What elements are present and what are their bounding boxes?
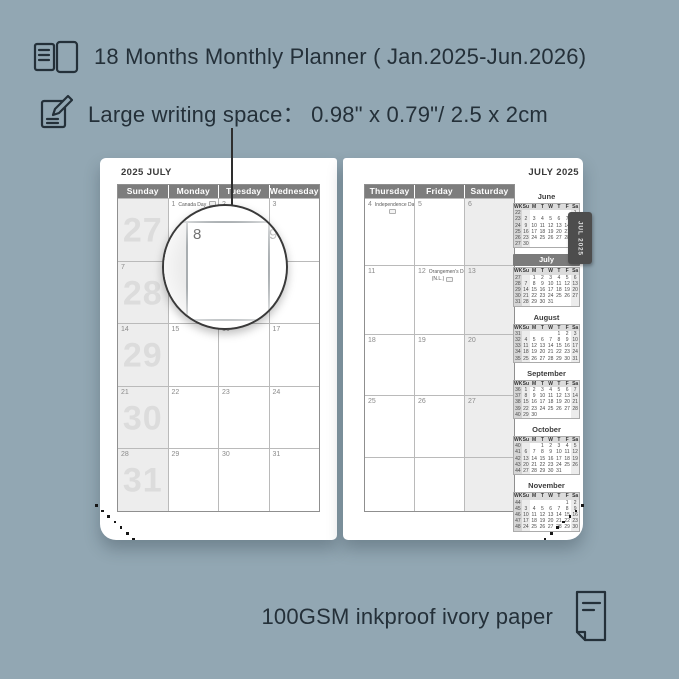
cell-date-line: 25 xyxy=(365,396,414,406)
mini-header-cell: WK xyxy=(514,268,522,275)
cell-date-line: 21 xyxy=(118,387,168,397)
mini-header-cell: Su xyxy=(522,493,530,500)
magnified-grid-line xyxy=(186,221,188,328)
mini-week-number: 27 xyxy=(514,275,522,281)
day-header-saturday: Saturday xyxy=(465,185,514,198)
cell-date-line: 24 xyxy=(270,387,320,397)
mini-calendar-october: OctoberWKSuMTWTFSa4012345416789101112421… xyxy=(513,425,580,475)
cell-date-line xyxy=(465,458,514,460)
right-month-grid: ThursdayFridaySaturday4Independence Day5… xyxy=(364,184,515,512)
mini-header-row: WKSuMTWTFSa xyxy=(514,437,580,444)
mini-date-cell: 25 xyxy=(522,356,530,363)
mini-date-cell: 27 xyxy=(538,356,546,363)
mini-date-cell: 30 xyxy=(538,299,546,306)
date-number: 14 xyxy=(121,326,129,334)
mini-header-cell: W xyxy=(547,204,555,211)
mini-week-number: 42 xyxy=(514,456,522,462)
stitch-dot xyxy=(562,521,565,524)
mini-header-cell: Su xyxy=(522,204,530,211)
holiday-label: Orangemen's Day xyxy=(429,268,464,276)
mini-date-cell: 26 xyxy=(538,524,546,531)
mini-date-cell xyxy=(563,299,571,306)
mini-date-cell: 27 xyxy=(555,235,563,241)
mini-date-cell xyxy=(571,299,579,306)
magnifier-circle: 8 9 xyxy=(162,204,288,330)
mini-date-cell xyxy=(571,468,579,475)
holiday-flag-icon xyxy=(446,277,453,282)
day-cell: 18 xyxy=(365,335,414,396)
mini-week-number: 44 xyxy=(514,500,522,506)
cell-date-line: 12Orangemen's Day xyxy=(415,266,464,276)
mini-week-number: 48 xyxy=(514,524,522,531)
day-cell: 13 xyxy=(465,266,514,334)
mini-header-cell: T xyxy=(555,437,563,444)
mini-header-row: WKSuMTWTFSa xyxy=(514,493,580,500)
mini-date-cell: 26 xyxy=(530,356,538,363)
stitch-dot xyxy=(120,526,123,529)
stitch-dot xyxy=(101,510,104,513)
holiday-flag-line xyxy=(365,209,414,214)
mini-header-cell: M xyxy=(530,493,538,500)
mini-date-cell: 13 xyxy=(522,456,530,462)
mini-header-cell: T xyxy=(555,493,563,500)
mini-header-cell: M xyxy=(530,437,538,444)
mini-header-cell: W xyxy=(547,380,555,387)
mini-date-cell: 10 xyxy=(555,449,563,455)
mini-date-cell xyxy=(555,412,563,419)
mini-header-row: WKSuMTWTFSa xyxy=(514,324,580,331)
mini-date-cell: 19 xyxy=(555,399,563,405)
mini-calendar-title: September xyxy=(513,369,580,379)
cell-date-line: 19 xyxy=(415,335,464,345)
date-number: 23 xyxy=(222,389,230,397)
cell-date-line: 30 xyxy=(219,449,269,459)
mini-date-cell: 31 xyxy=(547,299,555,306)
day-cell: 12Orangemen's Day(N.L.) xyxy=(415,266,464,334)
date-number: 28 xyxy=(121,451,129,459)
stitch-dot xyxy=(575,510,578,513)
mini-date-cell xyxy=(547,412,555,419)
day-cell: 30 xyxy=(219,449,269,511)
stitch-dot xyxy=(550,532,553,535)
magnified-adjacent-date: 9 xyxy=(269,226,277,243)
open-book-icon xyxy=(33,38,79,76)
week-number: 29 xyxy=(123,337,163,376)
mini-date-cell: 15 xyxy=(522,399,530,405)
date-number: 6 xyxy=(468,201,472,209)
holiday-flag-icon xyxy=(389,209,396,214)
day-cell: 5 xyxy=(415,199,464,265)
mini-week-number: 27 xyxy=(514,241,522,248)
mini-header-cell: Su xyxy=(522,268,530,275)
mini-week-number: 38 xyxy=(514,399,522,405)
planner-right-page: JULY 2025 ThursdayFridaySaturday4Indepen… xyxy=(343,158,583,540)
mini-header-cell: WK xyxy=(514,493,522,500)
mini-date-cell: 28 xyxy=(530,468,538,475)
mini-date-cell: 30 xyxy=(522,241,530,248)
mini-header-cell: T xyxy=(538,380,546,387)
cell-date-line: 26 xyxy=(415,396,464,406)
mini-header-cell: T xyxy=(538,204,546,211)
date-number: 21 xyxy=(121,389,129,397)
date-number: 5 xyxy=(418,201,422,209)
cell-date-line: 13 xyxy=(465,266,514,276)
feature-months: 18 Months Monthly Planner ( Jan.2025-Jun… xyxy=(33,38,586,76)
mini-header-cell: W xyxy=(547,437,555,444)
cell-date-line: 4Independence Day xyxy=(365,199,414,209)
day-cell: 27 xyxy=(465,396,514,457)
cell-date-line: 14 xyxy=(118,324,168,334)
day-header-tuesday: Tuesday xyxy=(219,185,269,198)
feature-writing-text: Large writing space： 0.98" x 0.79"/ 2.5 … xyxy=(88,97,548,129)
day-cell: 26 xyxy=(415,396,464,457)
day-header-friday: Friday xyxy=(415,185,464,198)
mini-header-cell: M xyxy=(530,324,538,331)
product-image: 18 Months Monthly Planner ( Jan.2025-Jun… xyxy=(0,0,679,679)
mini-header-cell: WK xyxy=(514,380,522,387)
mini-date-cell: 30 xyxy=(571,524,579,531)
mini-header-cell: Su xyxy=(522,380,530,387)
mini-week-row: 3128293031 xyxy=(514,299,580,306)
mini-date-cell: 25 xyxy=(555,293,563,299)
right-page-title: JULY 2025 xyxy=(528,167,579,178)
mini-date-cell xyxy=(538,412,546,419)
cell-date-line: 11 xyxy=(365,266,414,276)
date-number: 3 xyxy=(273,201,277,209)
mini-date-cell: 22 xyxy=(555,349,563,355)
mini-header-cell: T xyxy=(555,204,563,211)
mini-week-number: 24 xyxy=(514,223,522,229)
mini-date-cell: 27 xyxy=(547,524,555,531)
day-cell: 22 xyxy=(169,387,219,449)
mini-calendar-august: AugustWKSuMTWTFSa31123324567891033111213… xyxy=(513,313,580,363)
cell-date-line: 7 xyxy=(118,262,168,272)
mini-date-cell xyxy=(555,299,563,306)
mini-date-cell: 30 xyxy=(547,468,555,475)
month-index-tab: JUL 2025 xyxy=(568,212,592,264)
mini-date-cell: 31 xyxy=(571,356,579,363)
mini-header-cell: F xyxy=(563,437,571,444)
mini-calendar-title: November xyxy=(513,481,580,491)
month-grid-body: 4Independence Day561112Orangemen's Day(N… xyxy=(365,198,514,511)
mini-header-cell: Sa xyxy=(571,437,579,444)
mini-date-cell: 29 xyxy=(522,412,530,419)
mini-date-cell: 28 xyxy=(522,299,530,306)
weekday-header-row: ThursdayFridaySaturday xyxy=(365,185,514,198)
mini-calendar-table: WKSuMTWTFSa36123456737891011121314381516… xyxy=(513,380,580,419)
mini-date-cell xyxy=(555,241,563,248)
mini-header-row: WKSuMTWTFSa xyxy=(514,204,580,211)
day-cell: 19 xyxy=(415,335,464,396)
date-number: 24 xyxy=(273,389,281,397)
date-number: 12 xyxy=(418,268,426,276)
mini-header-cell: T xyxy=(538,268,546,275)
mini-calendar-title: June xyxy=(513,192,580,202)
feature-paper: 100GSM inkproof ivory paper xyxy=(0,590,610,644)
mini-date-cell xyxy=(563,468,571,475)
holiday-flag-line: (N.L.) xyxy=(415,276,464,283)
week-number: 27 xyxy=(123,212,163,251)
mini-date-cell: 29 xyxy=(538,468,546,475)
mini-header-cell: F xyxy=(563,268,571,275)
mini-header-row: WKSuMTWTFSa xyxy=(514,268,580,275)
mini-header-cell: T xyxy=(555,268,563,275)
mini-header-cell: W xyxy=(547,268,555,275)
cell-date-line: 5 xyxy=(415,199,464,209)
day-cell xyxy=(365,458,414,511)
holiday-label-line2: (N.L.) xyxy=(432,276,445,283)
mini-date-cell xyxy=(563,412,571,419)
mini-date-cell xyxy=(538,241,546,248)
day-header-monday: Monday xyxy=(169,185,219,198)
day-cell: 16 xyxy=(219,324,269,386)
day-cell: 31 xyxy=(270,449,320,511)
mini-calendar-title: August xyxy=(513,313,580,323)
mini-date-cell: 13 xyxy=(555,223,563,229)
holiday-label: Independence Day xyxy=(375,201,414,209)
mini-calendar-title: October xyxy=(513,425,580,435)
day-header-thursday: Thursday xyxy=(365,185,414,198)
paper-sheet-icon xyxy=(570,590,610,644)
cell-date-line: 28 xyxy=(118,449,168,459)
day-cell: 11 xyxy=(365,266,414,334)
feature-paper-text: 100GSM inkproof ivory paper xyxy=(261,604,553,630)
day-cell: 3021 xyxy=(118,387,168,449)
cell-date-line: 3 xyxy=(270,199,320,209)
mini-date-cell xyxy=(530,241,538,248)
feature-months-text: 18 Months Monthly Planner ( Jan.2025-Jun… xyxy=(94,44,586,70)
mini-date-cell xyxy=(571,412,579,419)
mini-week-number: 34 xyxy=(514,349,522,355)
day-cell xyxy=(465,458,514,511)
date-number: 1 xyxy=(172,201,176,209)
day-header-wednesday: Wednesday xyxy=(270,185,320,198)
week-number: 28 xyxy=(123,274,163,313)
magnified-grid-line xyxy=(186,319,270,321)
mini-calendar-table: WKSuMTWTFSa44124534567894610111213141516… xyxy=(513,492,580,531)
cell-date-line xyxy=(365,458,414,460)
date-number: 30 xyxy=(222,451,230,459)
magnified-date: 8 xyxy=(193,226,201,243)
cell-date-line: 20 xyxy=(465,335,514,345)
cell-date-line: 17 xyxy=(270,324,320,334)
left-page-title: 2025 JULY xyxy=(121,167,172,178)
day-cell: 24 xyxy=(270,387,320,449)
date-number: 31 xyxy=(273,451,281,459)
stitch-dot xyxy=(544,538,547,541)
mini-header-row: WKSuMTWTFSa xyxy=(514,380,580,387)
date-number: 26 xyxy=(418,398,426,406)
date-number: 7 xyxy=(121,264,125,272)
feature-writing: Large writing space： 0.98" x 0.79"/ 2.5 … xyxy=(39,94,548,131)
mini-header-cell: T xyxy=(538,493,546,500)
mini-date-cell: 29 xyxy=(563,524,571,531)
mini-calendar-november: NovemberWKSuMTWTFSa441245345678946101112… xyxy=(513,481,580,531)
day-cell: 27 xyxy=(118,199,168,261)
date-number: 29 xyxy=(172,451,180,459)
cell-date-line: 22 xyxy=(169,387,219,397)
mini-header-cell: F xyxy=(563,324,571,331)
mini-week-row: 442728293031 xyxy=(514,468,580,475)
mini-header-cell: Su xyxy=(522,437,530,444)
mini-calendar-table: WKSuMTWTFSa27123456287891011121329141516… xyxy=(513,267,580,306)
mini-header-cell: M xyxy=(530,204,538,211)
mini-header-cell: WK xyxy=(514,324,522,331)
mini-date-cell: 17 xyxy=(555,456,563,462)
cell-date-line xyxy=(415,458,464,460)
day-cell: 25 xyxy=(365,396,414,457)
mini-date-cell: 29 xyxy=(530,299,538,306)
day-header-sunday: Sunday xyxy=(118,185,168,198)
mini-calendar-september: SeptemberWKSuMTWTFSa36123456737891011121… xyxy=(513,369,580,419)
week-number: 31 xyxy=(123,462,163,501)
mini-date-cell: 18 xyxy=(522,349,530,355)
mini-week-row: 402930 xyxy=(514,412,580,419)
mini-date-cell: 25 xyxy=(530,524,538,531)
date-number: 13 xyxy=(468,268,476,276)
mini-date-cell: 22 xyxy=(522,406,530,412)
stitch-dot xyxy=(556,526,559,529)
date-number: 18 xyxy=(368,337,376,345)
mini-header-cell: WK xyxy=(514,204,522,211)
day-cell: 15 xyxy=(169,324,219,386)
mini-date-cell: 29 xyxy=(555,356,563,363)
day-cell: 20 xyxy=(465,335,514,396)
mini-header-cell: WK xyxy=(514,437,522,444)
mini-week-number: 41 xyxy=(514,449,522,455)
day-cell: 287 xyxy=(118,262,168,324)
mini-week-number: 39 xyxy=(514,406,522,412)
day-cell: 17 xyxy=(270,324,320,386)
mini-week-number: 45 xyxy=(514,506,522,512)
mini-header-cell: Sa xyxy=(571,380,579,387)
date-number: 25 xyxy=(368,398,376,406)
mini-week-row: 3525262728293031 xyxy=(514,356,580,363)
stitch-dot xyxy=(581,504,584,507)
day-cell: 3128 xyxy=(118,449,168,511)
pencil-note-icon xyxy=(39,94,73,131)
stitch-dot xyxy=(569,515,572,518)
mini-header-cell: T xyxy=(538,324,546,331)
mini-date-cell: 30 xyxy=(563,356,571,363)
date-number: 11 xyxy=(368,268,375,276)
date-number: 22 xyxy=(172,389,180,397)
day-cell: 29 xyxy=(169,449,219,511)
mini-calendar-table: WKSuMTWTFSa31123324567891033111213141516… xyxy=(513,324,580,363)
mini-week-row: 4824252627282930 xyxy=(514,524,580,531)
mini-date-cell: 30 xyxy=(530,412,538,419)
mini-date-cell: 27 xyxy=(522,468,530,475)
mini-header-cell: Sa xyxy=(571,324,579,331)
mini-header-cell: W xyxy=(547,324,555,331)
mini-header-cell: F xyxy=(563,204,571,211)
date-number: 27 xyxy=(468,398,476,406)
date-number: 4 xyxy=(368,201,372,209)
mini-header-cell: Sa xyxy=(571,268,579,275)
mini-header-cell: Su xyxy=(522,324,530,331)
date-number: 20 xyxy=(468,337,476,345)
mini-header-cell: W xyxy=(547,493,555,500)
mini-date-cell: 28 xyxy=(547,356,555,363)
mini-week-number: 23 xyxy=(514,216,522,222)
stitch-dot xyxy=(126,532,129,535)
day-cell: 23 xyxy=(219,387,269,449)
mini-week-number: 44 xyxy=(514,468,522,475)
cell-date-line: 31 xyxy=(270,449,320,459)
mini-week-number: 40 xyxy=(514,412,522,419)
mini-week-number: 31 xyxy=(514,299,522,306)
callout-pointer-line xyxy=(231,128,233,207)
mini-week-number: 35 xyxy=(514,356,522,363)
mini-header-cell: T xyxy=(538,437,546,444)
mini-header-cell: T xyxy=(555,324,563,331)
mini-calendar-table: WKSuMTWTFSa40123454167891011124213141516… xyxy=(513,436,580,475)
weekday-header-row: SundayMondayTuesdayWednesday xyxy=(118,185,319,198)
mini-header-cell: F xyxy=(563,380,571,387)
cell-date-line: 27 xyxy=(465,396,514,406)
mini-header-cell: M xyxy=(530,380,538,387)
mini-date-cell: 26 xyxy=(555,406,563,412)
stitch-dot xyxy=(107,515,110,518)
stitch-dot xyxy=(114,521,117,524)
mini-header-cell: Sa xyxy=(571,204,579,211)
date-number: 19 xyxy=(418,337,426,345)
stitch-dot xyxy=(95,504,98,507)
day-cell: 4Independence Day xyxy=(365,199,414,265)
day-cell xyxy=(415,458,464,511)
date-number: 17 xyxy=(273,326,281,334)
cell-date-line: 29 xyxy=(169,449,219,459)
mini-header-cell: F xyxy=(563,493,571,500)
mini-header-cell: M xyxy=(530,268,538,275)
magnified-weekend-shade xyxy=(164,221,186,328)
cell-date-line: 23 xyxy=(219,387,269,397)
mini-date-cell: 31 xyxy=(555,468,563,475)
cell-date-line xyxy=(118,199,168,201)
day-cell: 2914 xyxy=(118,324,168,386)
mini-header-cell: Sa xyxy=(571,493,579,500)
stitch-dot xyxy=(132,538,135,541)
cell-date-line: 18 xyxy=(365,335,414,345)
week-number: 30 xyxy=(123,399,163,438)
mini-date-cell: 24 xyxy=(522,524,530,531)
cell-date-line: 6 xyxy=(465,199,514,209)
mini-header-cell: T xyxy=(555,380,563,387)
day-cell: 6 xyxy=(465,199,514,265)
mini-date-cell xyxy=(547,241,555,248)
